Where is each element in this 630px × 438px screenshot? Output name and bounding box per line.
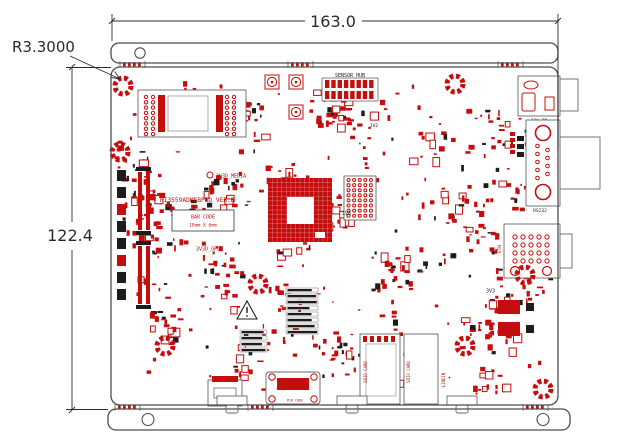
eth-label: ETH bbox=[497, 245, 503, 254]
pcb-code-connector: PCB CODE bbox=[266, 372, 320, 404]
corner-radius-callout: R3.3000 bbox=[12, 38, 120, 79]
pcb-assembly-drawing: SENSOR HUB bbox=[0, 0, 630, 438]
barcode-line1: BAR CODE bbox=[191, 215, 215, 221]
rail-1v8-label: 1V8 bbox=[342, 211, 351, 217]
height-dimension: 122.4 bbox=[47, 64, 111, 413]
width-dimension-label: 163.0 bbox=[310, 12, 356, 31]
gpu-rail-label: 3V3D_GPU bbox=[196, 247, 220, 253]
rs232-label: RS232 bbox=[533, 208, 547, 214]
sd-card-slot-1: SDIO CARD bbox=[360, 334, 400, 404]
ethernet-rj45-connector: ETH bbox=[497, 224, 572, 278]
rail-1v2-label: 1V2 bbox=[370, 123, 378, 129]
rail-3v3-label: 3V3 bbox=[486, 289, 495, 295]
bga-soc bbox=[268, 178, 332, 242]
line-in-label: LINEIN bbox=[441, 372, 446, 387]
barcode-box: BAR CODE 18mm X 6mm bbox=[172, 210, 234, 231]
sd-card1-label: SDIO CARD bbox=[363, 361, 368, 383]
memory-socket bbox=[138, 90, 246, 137]
height-dimension-label: 122.4 bbox=[47, 226, 93, 245]
media-rail-label: 3V3D_MEDIA bbox=[216, 174, 246, 180]
pcb-code-label: PCB CODE bbox=[287, 399, 303, 403]
corner-radius-label: R3.3000 bbox=[12, 38, 75, 56]
board-title: HI3559ADMEBPRO VER.B bbox=[160, 197, 235, 204]
sd-card2-label: SDIO CARD bbox=[406, 361, 411, 383]
sd-card-slot-2: SDIO CARD bbox=[404, 334, 438, 404]
barcode-line2: 18mm X 6mm bbox=[189, 223, 217, 229]
